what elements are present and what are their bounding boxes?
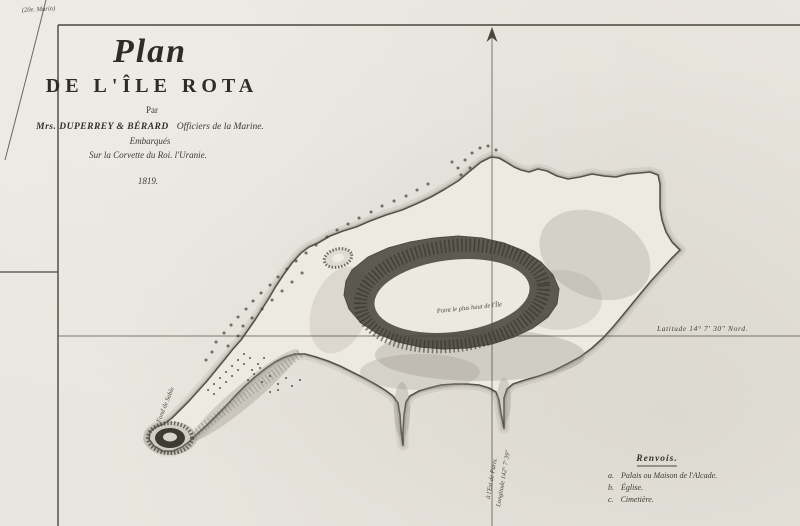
legend-label-c: Cimetière. <box>621 495 654 504</box>
longitude-label-group: Longitude 142° 7' 39" <box>495 449 512 508</box>
year-label: 1819. <box>138 176 158 186</box>
embarked-line: Embarqués <box>129 136 171 146</box>
legend-label-b: Église. <box>620 482 643 492</box>
map-sheet: (20e. Marin) <box>0 0 800 526</box>
authors-names: Mrs. DUPERREY & BÉRARD <box>35 120 169 132</box>
legend-label-a: Palais ou Maison de l'Alcade. <box>620 471 717 480</box>
latitude-label: Latitude 14° 7' 30" Nord. <box>656 324 748 333</box>
corner-diagonal-line <box>5 0 46 160</box>
page-title: DE L'ÎLE ROTA <box>46 73 258 97</box>
engraved-map: (20e. Marin) <box>0 0 800 526</box>
authors-role: Officiers de la Marine. <box>177 121 264 132</box>
legend: Renvois. a. Palais ou Maison de l'Alcade… <box>608 454 717 506</box>
title-par: Par <box>146 105 158 115</box>
legend-key-c: c. <box>608 495 614 504</box>
legend-item-a: a. Palais ou Maison de l'Alcade. <box>608 465 717 482</box>
longitude-label: Longitude 142° 7' 39" <box>495 449 512 508</box>
script-title: Plan <box>112 33 187 70</box>
authors-line: Mrs. DUPERREY & BÉRARD Officiers de la M… <box>35 116 264 133</box>
ship-line: Sur la Corvette du Roi. l'Uranie. <box>89 150 207 160</box>
title-block: Plan DE L'ÎLE ROTA Par Mrs. DUPERREY & B… <box>35 33 264 186</box>
corner-note: (20e. Marin) <box>22 5 56 14</box>
legend-heading: Renvois. <box>635 454 678 464</box>
